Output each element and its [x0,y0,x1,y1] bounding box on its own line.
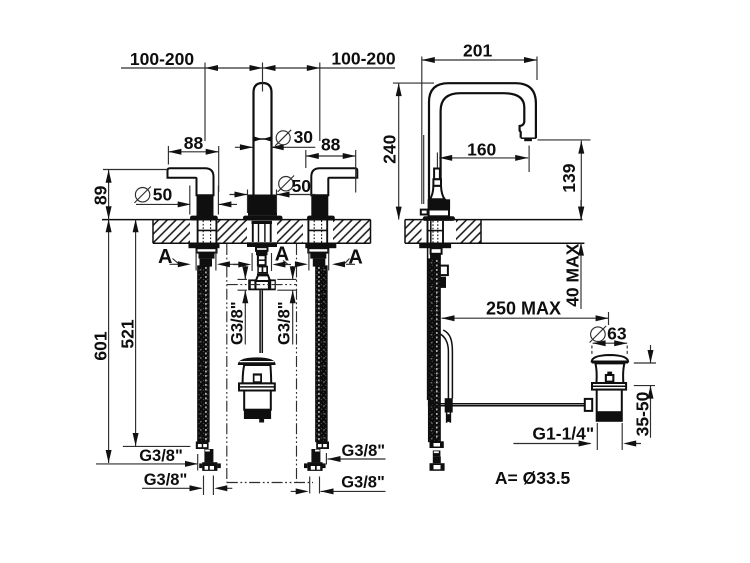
svg-text:88: 88 [184,133,204,153]
svg-text:A: A [348,247,362,269]
svg-text:521: 521 [118,319,138,348]
svg-text:G3/8": G3/8" [144,471,188,489]
svg-text:201: 201 [463,40,492,60]
svg-text:139: 139 [559,163,579,192]
svg-text:A: A [275,244,289,266]
svg-text:40 MAX: 40 MAX [563,243,583,307]
svg-text:100-200: 100-200 [331,49,395,69]
svg-text:35-50: 35-50 [632,391,652,436]
svg-text:240: 240 [379,134,399,163]
svg-text:A= Ø33.5: A= Ø33.5 [495,468,571,488]
svg-text:601: 601 [91,331,111,360]
svg-text:50: 50 [292,176,312,196]
svg-text:160: 160 [467,140,496,160]
svg-text:88: 88 [321,135,341,155]
svg-text:G3/8": G3/8" [228,301,246,345]
svg-text:G1-1/4": G1-1/4" [532,423,594,443]
svg-text:G3/8": G3/8" [139,447,183,465]
svg-text:89: 89 [90,185,110,205]
svg-text:G3/8": G3/8" [341,442,385,460]
svg-text:250 MAX: 250 MAX [486,299,561,319]
svg-text:G3/8": G3/8" [341,474,385,492]
svg-text:30: 30 [294,127,314,147]
svg-text:100-200: 100-200 [130,49,194,69]
svg-text:63: 63 [607,324,627,344]
svg-text:50: 50 [153,185,173,205]
svg-text:A: A [158,246,172,268]
svg-text:G3/8": G3/8" [275,301,293,345]
